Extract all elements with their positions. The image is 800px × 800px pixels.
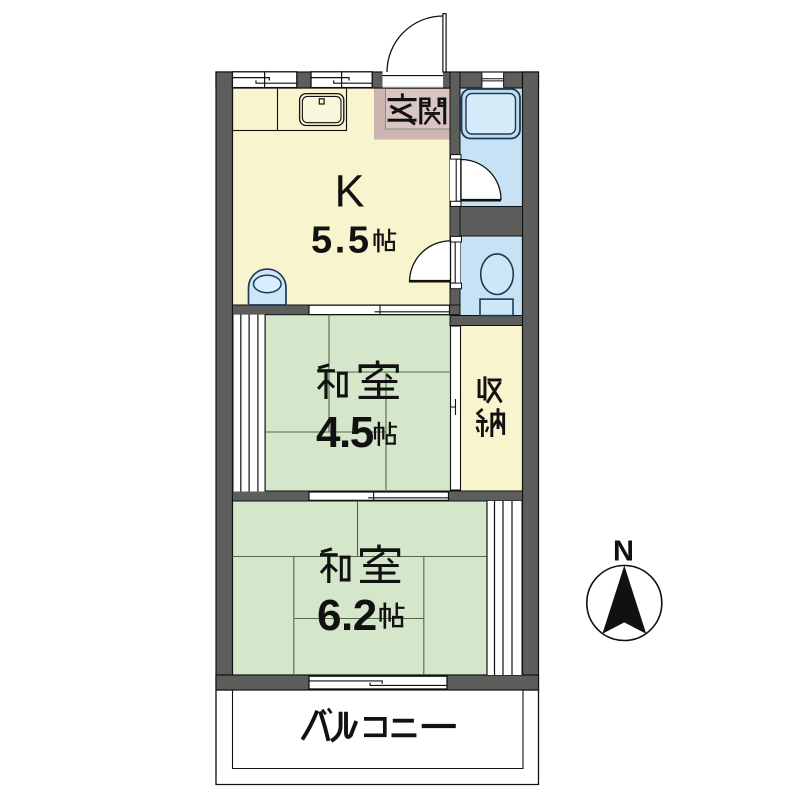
svg-text:4.5: 4.5 — [316, 408, 374, 457]
svg-text:N: N — [613, 535, 634, 567]
svg-text:6.2: 6.2 — [317, 591, 377, 640]
svg-text:5.5: 5.5 — [311, 219, 372, 261]
svg-text:K: K — [335, 165, 365, 216]
